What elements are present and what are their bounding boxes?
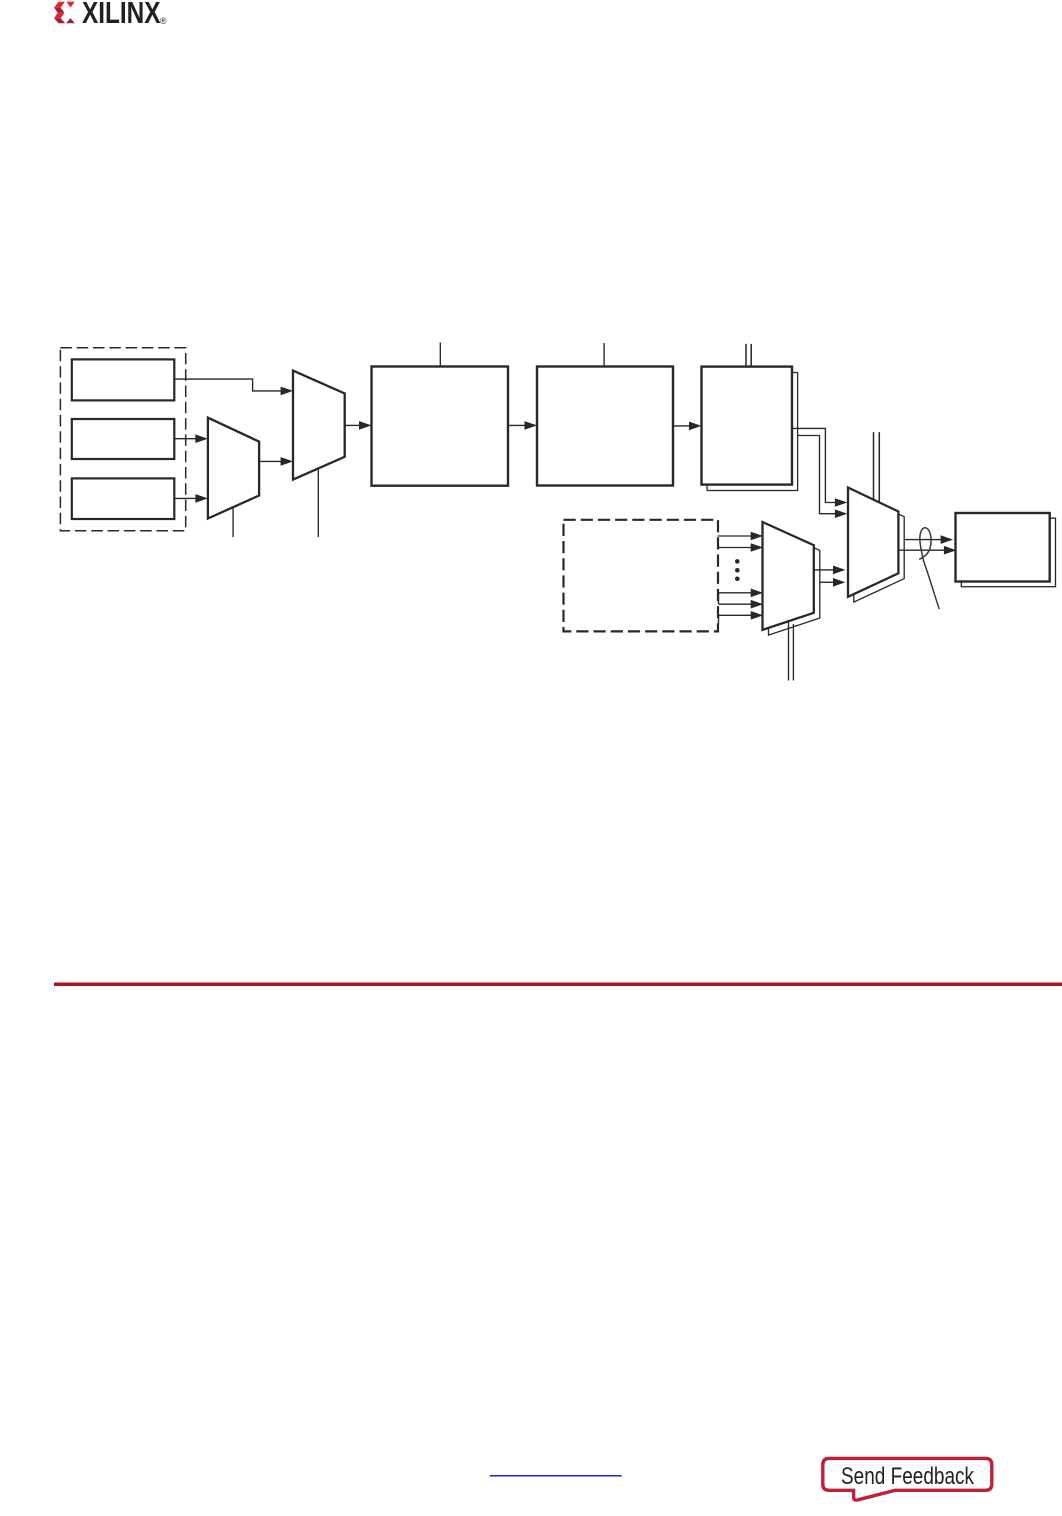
svg-text:®: ® xyxy=(160,16,167,26)
svg-text:XILINX: XILINX xyxy=(82,0,161,30)
svg-text:Send Feedback: Send Feedback xyxy=(841,1463,975,1490)
